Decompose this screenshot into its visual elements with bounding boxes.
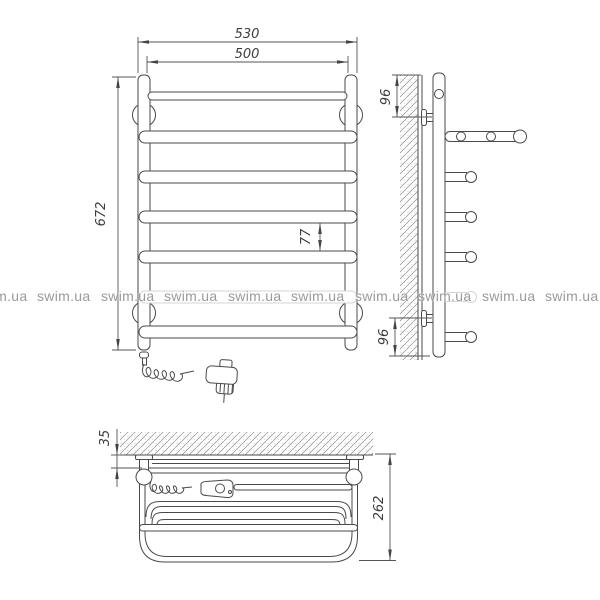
watermark-text: swim.ua [37, 288, 90, 305]
wall-hatch-top [120, 432, 373, 455]
watermark-text: swim.ua [291, 288, 344, 305]
rung [139, 251, 357, 263]
top-view [120, 432, 373, 562]
side-shelf-arm [445, 130, 527, 143]
top-view-cable-unit [150, 480, 233, 498]
heating-cable [143, 364, 194, 381]
heater-cap [140, 352, 149, 358]
side-bracket-top [422, 110, 434, 126]
dim-front-height-label: 672 [94, 202, 109, 227]
dim-front-rung-spacing-label: 77 [299, 228, 314, 245]
top-rung-end [435, 90, 444, 99]
watermark-text: swim.ua [545, 288, 598, 305]
side-rungs [445, 172, 477, 343]
power-plug [204, 359, 238, 404]
heater-stem [143, 358, 147, 365]
rung [139, 326, 357, 338]
wall-hatch-side [400, 75, 418, 360]
watermark-text: swim.ua [101, 288, 154, 305]
dim-front-rail-width-label: 500 [235, 47, 260, 62]
dim-front-overall-width-label: 530 [235, 27, 260, 42]
side-bracket-bottom [422, 311, 434, 327]
watermark-text: swim.ua [164, 288, 217, 305]
dim-side-top-offset-label: 96 [379, 89, 394, 106]
watermark-text: swim.ua [355, 288, 408, 305]
rung [139, 171, 357, 183]
watermark-text: swim.ua [228, 288, 281, 305]
watermark-text: swim.ua [482, 288, 535, 305]
side-view [400, 73, 527, 360]
dim-side-bottom-offset-label: 96 [377, 329, 392, 346]
cable-coil [150, 481, 192, 493]
heating-element [140, 352, 239, 404]
rung [148, 92, 347, 100]
dim-top-wall-clearance-label: 35 [98, 430, 113, 447]
side-post [433, 73, 445, 357]
shelf-bars [140, 485, 358, 532]
watermark-text: swim.ua [0, 288, 27, 305]
front-view [133, 75, 363, 404]
rung [139, 131, 357, 143]
dim-top-depth-label: 262 [372, 496, 387, 521]
rung [139, 211, 357, 223]
watermark-text: swim.ua [418, 288, 471, 305]
